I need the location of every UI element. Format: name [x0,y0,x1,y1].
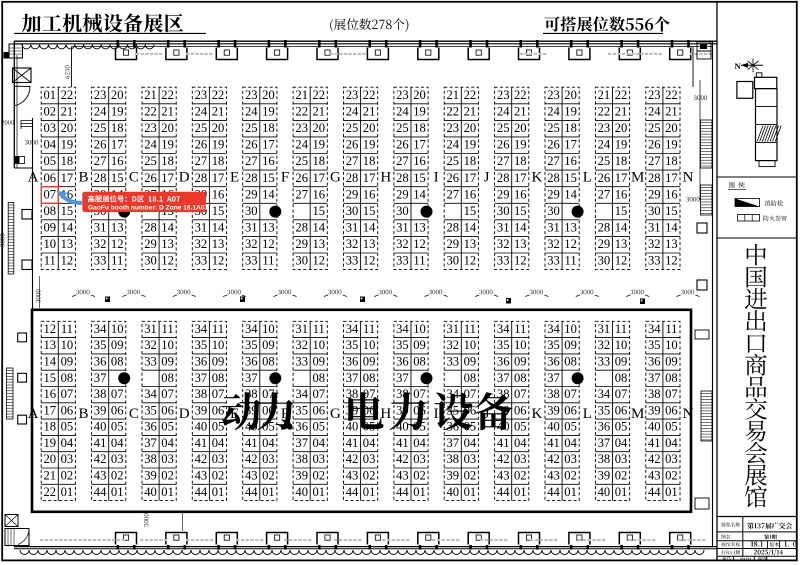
svg-text:23: 23 [598,121,611,135]
svg-text:35: 35 [195,338,208,352]
svg-text:29: 29 [598,237,611,251]
svg-text:24: 24 [295,138,308,152]
svg-text:24: 24 [547,105,560,119]
svg-text:19: 19 [514,138,527,152]
svg-text:12: 12 [363,254,376,268]
svg-text:30: 30 [346,204,359,218]
svg-text:32: 32 [396,237,409,251]
svg-text:31: 31 [598,322,611,336]
svg-text:33: 33 [195,254,208,268]
svg-text:30: 30 [144,254,157,268]
svg-text:03: 03 [111,452,124,466]
svg-text:42: 42 [547,452,560,466]
svg-text:14: 14 [564,187,577,201]
svg-text:11: 11 [413,254,425,268]
svg-text:38: 38 [648,387,661,401]
svg-text:08: 08 [413,354,426,368]
svg-text:D: D [179,406,190,422]
svg-text:15: 15 [413,171,426,185]
svg-text:40: 40 [195,420,208,434]
svg-text:10: 10 [313,338,326,352]
svg-text:01: 01 [262,485,275,499]
svg-text:03: 03 [514,452,527,466]
svg-text:14: 14 [44,354,57,368]
svg-text:43: 43 [245,469,258,483]
svg-text:40: 40 [648,420,661,434]
svg-text:34: 34 [497,322,510,336]
svg-text:17: 17 [564,138,577,152]
svg-text:15: 15 [111,171,124,185]
svg-text:34: 34 [245,322,258,336]
svg-text:10: 10 [262,322,275,336]
svg-text:30: 30 [447,254,460,268]
svg-text:20: 20 [61,121,74,135]
svg-text:21: 21 [665,105,678,119]
svg-text:19: 19 [615,138,628,152]
svg-text:28: 28 [144,221,157,235]
svg-text:04: 04 [564,436,577,450]
svg-text:25: 25 [245,121,258,135]
svg-text:10: 10 [514,338,527,352]
svg-text:31: 31 [94,221,107,235]
svg-text:05: 05 [111,420,124,434]
svg-text:40: 40 [547,420,560,434]
svg-text:16: 16 [665,187,678,201]
svg-text:19: 19 [111,105,124,119]
svg-text:13: 13 [161,237,174,251]
svg-text:27: 27 [547,154,560,168]
svg-text:14: 14 [514,221,527,235]
svg-text:01: 01 [111,485,124,499]
svg-text:20: 20 [262,88,275,102]
svg-text:31: 31 [195,221,208,235]
svg-text:32: 32 [447,338,460,352]
svg-text:24: 24 [648,105,661,119]
svg-text:09: 09 [61,354,74,368]
svg-text:18: 18 [262,121,275,135]
svg-text:12: 12 [61,254,74,268]
svg-text:10: 10 [212,338,225,352]
svg-text:32: 32 [94,237,107,251]
svg-text:16: 16 [111,154,124,168]
svg-text:40: 40 [346,420,359,434]
svg-text:12: 12 [111,237,124,251]
svg-text:21: 21 [615,105,628,119]
svg-text:07: 07 [514,387,527,401]
svg-text:38: 38 [295,452,308,466]
svg-text:09: 09 [363,354,376,368]
svg-text:04: 04 [665,436,678,450]
svg-text:05: 05 [44,154,57,168]
svg-text:10: 10 [363,338,376,352]
svg-text:33: 33 [245,254,258,268]
svg-text:23: 23 [195,88,208,102]
svg-text:27: 27 [346,154,359,168]
svg-text:17: 17 [363,171,376,185]
svg-text:11: 11 [363,322,375,336]
svg-text:02: 02 [564,469,577,483]
svg-text:10: 10 [464,338,477,352]
svg-text:39: 39 [547,403,560,417]
svg-text:29: 29 [547,187,560,201]
svg-text:36: 36 [648,354,661,368]
svg-text:37: 37 [245,371,258,385]
svg-text:09: 09 [212,354,225,368]
svg-text:20: 20 [363,121,376,135]
svg-text:05: 05 [212,420,225,434]
svg-text:06: 06 [44,171,57,185]
svg-text:33: 33 [447,354,460,368]
svg-text:42: 42 [396,452,409,466]
svg-text:05: 05 [61,420,74,434]
svg-text:02: 02 [464,469,477,483]
svg-text:26: 26 [94,138,107,152]
svg-text:K: K [531,406,542,422]
svg-text:23: 23 [648,88,661,102]
svg-text:07: 07 [665,387,678,401]
svg-text:07: 07 [313,387,326,401]
svg-text:06: 06 [564,403,577,417]
svg-text:16: 16 [262,154,275,168]
svg-text:22: 22 [665,88,678,102]
svg-text:32: 32 [346,237,359,251]
svg-text:31: 31 [447,322,460,336]
svg-text:41: 41 [94,436,107,450]
svg-text:13: 13 [262,221,275,235]
svg-text:L: L [583,406,592,422]
svg-text:01: 01 [44,88,57,102]
svg-text:31: 31 [144,322,157,336]
svg-text:08: 08 [44,204,57,218]
svg-text:40: 40 [94,420,107,434]
svg-text:27: 27 [598,187,611,201]
svg-text:18: 18 [665,154,678,168]
svg-text:04: 04 [61,436,74,450]
svg-text:24: 24 [497,105,510,119]
svg-text:11: 11 [565,254,577,268]
svg-text:12: 12 [212,254,225,268]
svg-text:H: H [380,406,391,422]
svg-text:37: 37 [648,371,661,385]
svg-text:31: 31 [648,221,661,235]
svg-text:33: 33 [547,254,560,268]
svg-text:44: 44 [396,485,409,499]
svg-text:41: 41 [396,436,409,450]
svg-text:24: 24 [396,105,409,119]
svg-text:15: 15 [44,371,57,385]
svg-text:02: 02 [313,469,326,483]
svg-text:03: 03 [665,452,678,466]
svg-text:22: 22 [161,88,174,102]
svg-text:10: 10 [44,237,57,251]
svg-text:07: 07 [413,387,426,401]
svg-text:26: 26 [144,171,157,185]
svg-text:06: 06 [111,403,124,417]
svg-text:20: 20 [111,88,124,102]
svg-text:11: 11 [162,322,174,336]
svg-text:16: 16 [464,187,477,201]
svg-text:08: 08 [212,371,225,385]
svg-text:28: 28 [598,221,611,235]
svg-text:23: 23 [497,88,510,102]
svg-text:12: 12 [313,254,326,268]
svg-text:37: 37 [346,371,359,385]
svg-text:15: 15 [212,204,225,218]
svg-text:43: 43 [547,469,560,483]
svg-text:20: 20 [161,121,174,135]
svg-text:29: 29 [346,187,359,201]
svg-text:27: 27 [447,187,460,201]
svg-text:22: 22 [144,105,157,119]
svg-text:37: 37 [547,371,560,385]
svg-text:03: 03 [161,452,174,466]
svg-text:L: L [583,170,592,186]
svg-text:G: G [330,170,341,186]
svg-text:16: 16 [413,154,426,168]
svg-text:41: 41 [648,436,661,450]
svg-text:13: 13 [44,338,57,352]
svg-text:J: J [484,170,490,186]
svg-text:44: 44 [547,485,560,499]
svg-text:30: 30 [648,204,661,218]
svg-text:39: 39 [94,403,107,417]
svg-text:10: 10 [111,322,124,336]
svg-text:17: 17 [514,171,527,185]
svg-text:19: 19 [212,138,225,152]
svg-text:26: 26 [195,138,208,152]
svg-text:18: 18 [44,420,57,434]
svg-text:01: 01 [413,485,426,499]
svg-text:20: 20 [615,121,628,135]
svg-text:01: 01 [161,485,174,499]
svg-text:36: 36 [144,420,157,434]
svg-text:32: 32 [195,237,208,251]
svg-text:14: 14 [161,221,174,235]
svg-text:01: 01 [514,485,527,499]
svg-text:20: 20 [313,121,326,135]
svg-text:39: 39 [195,403,208,417]
svg-text:40: 40 [144,485,157,499]
svg-text:16: 16 [313,187,326,201]
svg-text:03: 03 [44,121,57,135]
svg-text:42: 42 [94,452,107,466]
svg-text:34: 34 [547,322,560,336]
svg-text:25: 25 [295,154,308,168]
svg-text:10: 10 [615,338,628,352]
svg-text:05: 05 [514,420,527,434]
svg-text:I: I [434,170,439,186]
svg-text:42: 42 [648,452,661,466]
svg-text:22: 22 [313,88,326,102]
svg-text:03: 03 [363,452,376,466]
svg-text:13: 13 [363,237,376,251]
svg-text:15: 15 [665,204,678,218]
svg-text:35: 35 [598,403,611,417]
svg-text:25: 25 [195,121,208,135]
svg-text:17: 17 [413,138,426,152]
svg-text:35: 35 [396,338,409,352]
svg-text:16: 16 [514,187,527,201]
svg-text:09: 09 [111,338,124,352]
svg-text:13: 13 [615,237,628,251]
svg-text:N: N [683,406,694,422]
svg-text:20: 20 [514,121,527,135]
svg-text:05: 05 [313,420,326,434]
svg-text:M: M [631,170,644,186]
svg-text:44: 44 [497,485,510,499]
svg-text:02: 02 [615,469,628,483]
svg-text:31: 31 [245,221,258,235]
svg-text:42: 42 [346,452,359,466]
svg-text:19: 19 [44,436,57,450]
svg-text:14: 14 [212,221,225,235]
svg-text:26: 26 [346,138,359,152]
svg-text:07: 07 [615,387,628,401]
svg-text:31: 31 [547,221,560,235]
svg-text:03: 03 [464,452,477,466]
svg-text:22: 22 [514,88,527,102]
svg-text:38: 38 [547,387,560,401]
svg-text:10: 10 [413,322,426,336]
svg-text:A: A [28,406,39,422]
svg-text:43: 43 [346,469,359,483]
svg-text:08: 08 [161,371,174,385]
svg-text:12: 12 [514,254,527,268]
svg-text:21: 21 [464,105,477,119]
svg-text:33: 33 [598,354,611,368]
svg-text:03: 03 [564,452,577,466]
svg-text:32: 32 [547,237,560,251]
svg-text:38: 38 [144,452,157,466]
svg-text:24: 24 [144,138,157,152]
svg-text:21: 21 [295,88,308,102]
svg-text:13: 13 [564,221,577,235]
svg-text:19: 19 [161,138,174,152]
svg-text:44: 44 [94,485,107,499]
svg-text:30: 30 [598,254,611,268]
svg-text:22: 22 [61,88,74,102]
svg-text:23: 23 [144,121,157,135]
svg-text:22: 22 [212,88,225,102]
svg-text:24: 24 [346,105,359,119]
svg-text:09: 09 [665,354,678,368]
svg-text:27: 27 [94,154,107,168]
svg-text:40: 40 [295,485,308,499]
svg-text:24: 24 [245,105,258,119]
svg-text:01: 01 [665,485,678,499]
svg-text:13: 13 [514,237,527,251]
svg-text:44: 44 [648,485,661,499]
svg-text:25: 25 [598,154,611,168]
svg-text:01: 01 [212,485,225,499]
svg-text:02: 02 [262,469,275,483]
svg-text:19: 19 [564,105,577,119]
svg-text:12: 12 [564,237,577,251]
svg-text:34: 34 [396,322,409,336]
svg-text:28: 28 [295,221,308,235]
svg-text:02: 02 [44,105,57,119]
svg-text:A: A [28,170,39,186]
svg-text:07: 07 [111,387,124,401]
svg-text:28: 28 [195,171,208,185]
svg-text:11: 11 [514,322,526,336]
svg-text:26: 26 [295,171,308,185]
svg-text:37: 37 [447,436,460,450]
svg-text:24: 24 [447,138,460,152]
svg-text:43: 43 [497,469,510,483]
svg-text:09: 09 [413,338,426,352]
svg-text:04: 04 [363,436,376,450]
svg-text:11: 11 [61,322,73,336]
svg-text:28: 28 [346,171,359,185]
svg-text:13: 13 [464,237,477,251]
svg-text:38: 38 [195,387,208,401]
svg-text:09: 09 [564,338,577,352]
svg-text:F: F [281,170,289,186]
svg-text:25: 25 [94,121,107,135]
svg-text:05: 05 [564,420,577,434]
svg-text:22: 22 [464,88,477,102]
svg-text:C: C [129,406,139,422]
svg-text:19: 19 [464,138,477,152]
svg-text:22: 22 [598,105,611,119]
svg-text:08: 08 [514,371,527,385]
svg-text:21: 21 [44,469,57,483]
svg-text:41: 41 [547,436,560,450]
svg-text:37: 37 [295,436,308,450]
svg-text:07: 07 [44,187,57,201]
svg-text:22: 22 [295,105,308,119]
svg-text:D: D [179,170,190,186]
svg-text:26: 26 [497,138,510,152]
svg-text:18: 18 [212,154,225,168]
svg-text:37: 37 [195,371,208,385]
svg-text:28: 28 [497,171,510,185]
svg-text:35: 35 [547,338,560,352]
svg-text:17: 17 [161,171,174,185]
svg-text:14: 14 [464,221,477,235]
svg-text:06: 06 [212,403,225,417]
svg-text:02: 02 [665,469,678,483]
svg-text:14: 14 [413,187,426,201]
svg-text:29: 29 [245,187,258,201]
svg-text:11: 11 [111,254,123,268]
svg-text:01: 01 [363,485,376,499]
svg-text:28: 28 [547,171,560,185]
svg-text:06: 06 [313,403,326,417]
svg-text:02: 02 [161,469,174,483]
svg-text:26: 26 [245,138,258,152]
svg-text:E: E [230,170,239,186]
svg-text:37: 37 [396,371,409,385]
svg-text:03: 03 [61,452,74,466]
svg-text:18: 18 [464,154,477,168]
svg-text:19: 19 [313,138,326,152]
svg-text:21: 21 [212,105,225,119]
svg-text:09: 09 [262,338,275,352]
svg-text:07: 07 [564,387,577,401]
svg-text:33: 33 [396,254,409,268]
svg-text:06: 06 [61,403,74,417]
svg-text:08: 08 [313,371,326,385]
svg-text:26: 26 [547,138,560,152]
svg-text:H: H [380,170,391,186]
svg-text:09: 09 [464,354,477,368]
svg-text:31: 31 [497,221,510,235]
svg-text:16: 16 [212,187,225,201]
svg-text:28: 28 [447,221,460,235]
svg-text:04: 04 [262,436,275,450]
